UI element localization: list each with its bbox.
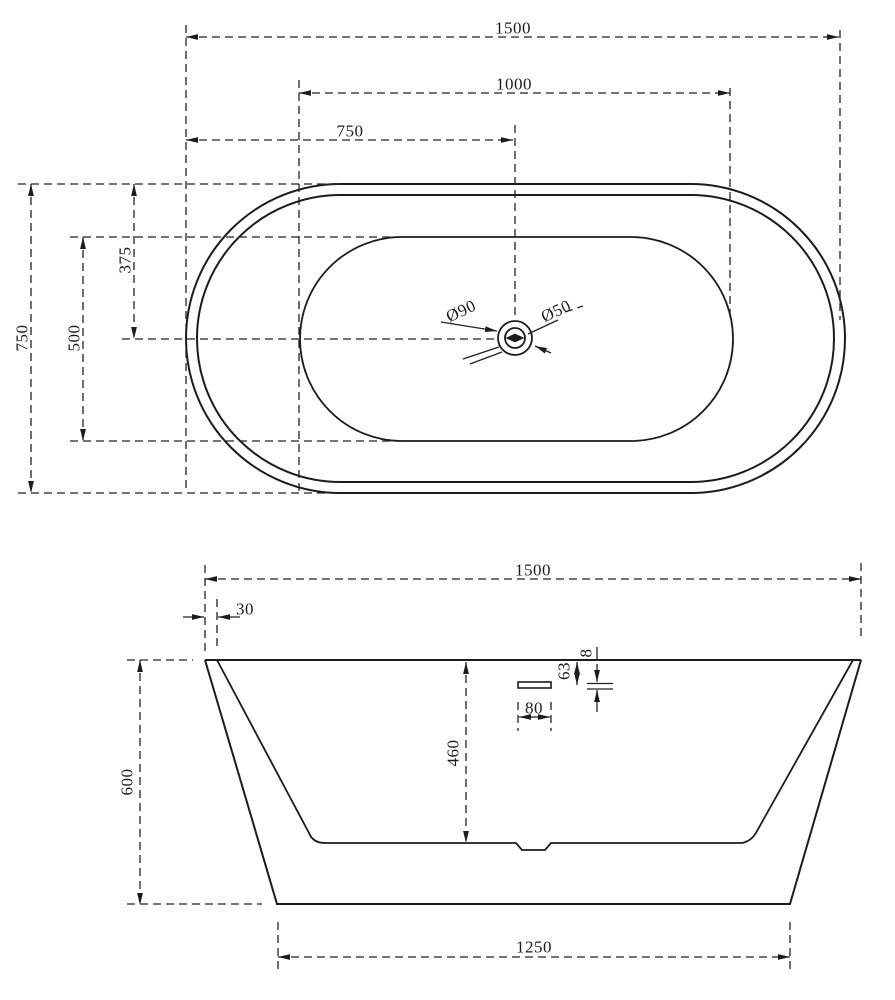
side-dim-rim-offset: 30 — [236, 601, 254, 618]
top-dim-length: 1500 — [495, 20, 531, 37]
side-dim-overflow-height: 8 — [578, 649, 595, 658]
drawing-canvas — [0, 0, 895, 1000]
top-dim-half-width: 375 — [117, 247, 134, 274]
technical-drawing-page: 1500 1000 750 750 500 375 Ø90 Ø50 1500 3… — [0, 0, 895, 1000]
top-view-construction-lines — [18, 25, 840, 493]
top-dim-half-length: 750 — [337, 123, 364, 140]
side-view-linework — [127, 563, 861, 973]
overflow-slot — [518, 682, 551, 688]
side-view-dimension-lines — [140, 579, 861, 957]
side-dim-height: 600 — [119, 769, 136, 796]
side-dim-overflow-offset: 63 — [556, 662, 573, 680]
tub-outer-profile — [205, 660, 861, 904]
top-view-linework — [18, 25, 845, 493]
side-dim-base-length: 1250 — [516, 939, 552, 956]
top-dim-width: 750 — [14, 325, 31, 352]
side-dim-length: 1500 — [515, 562, 551, 579]
side-dim-inner-depth: 460 — [445, 740, 462, 767]
drain — [498, 321, 532, 355]
top-dim-inner-width: 500 — [66, 325, 83, 352]
drain-bowtie-arrows — [506, 334, 525, 343]
side-dim-overflow-width: 80 — [525, 700, 543, 717]
top-dim-inner-length: 1000 — [496, 76, 532, 93]
top-view-dimension-lines — [31, 37, 839, 493]
